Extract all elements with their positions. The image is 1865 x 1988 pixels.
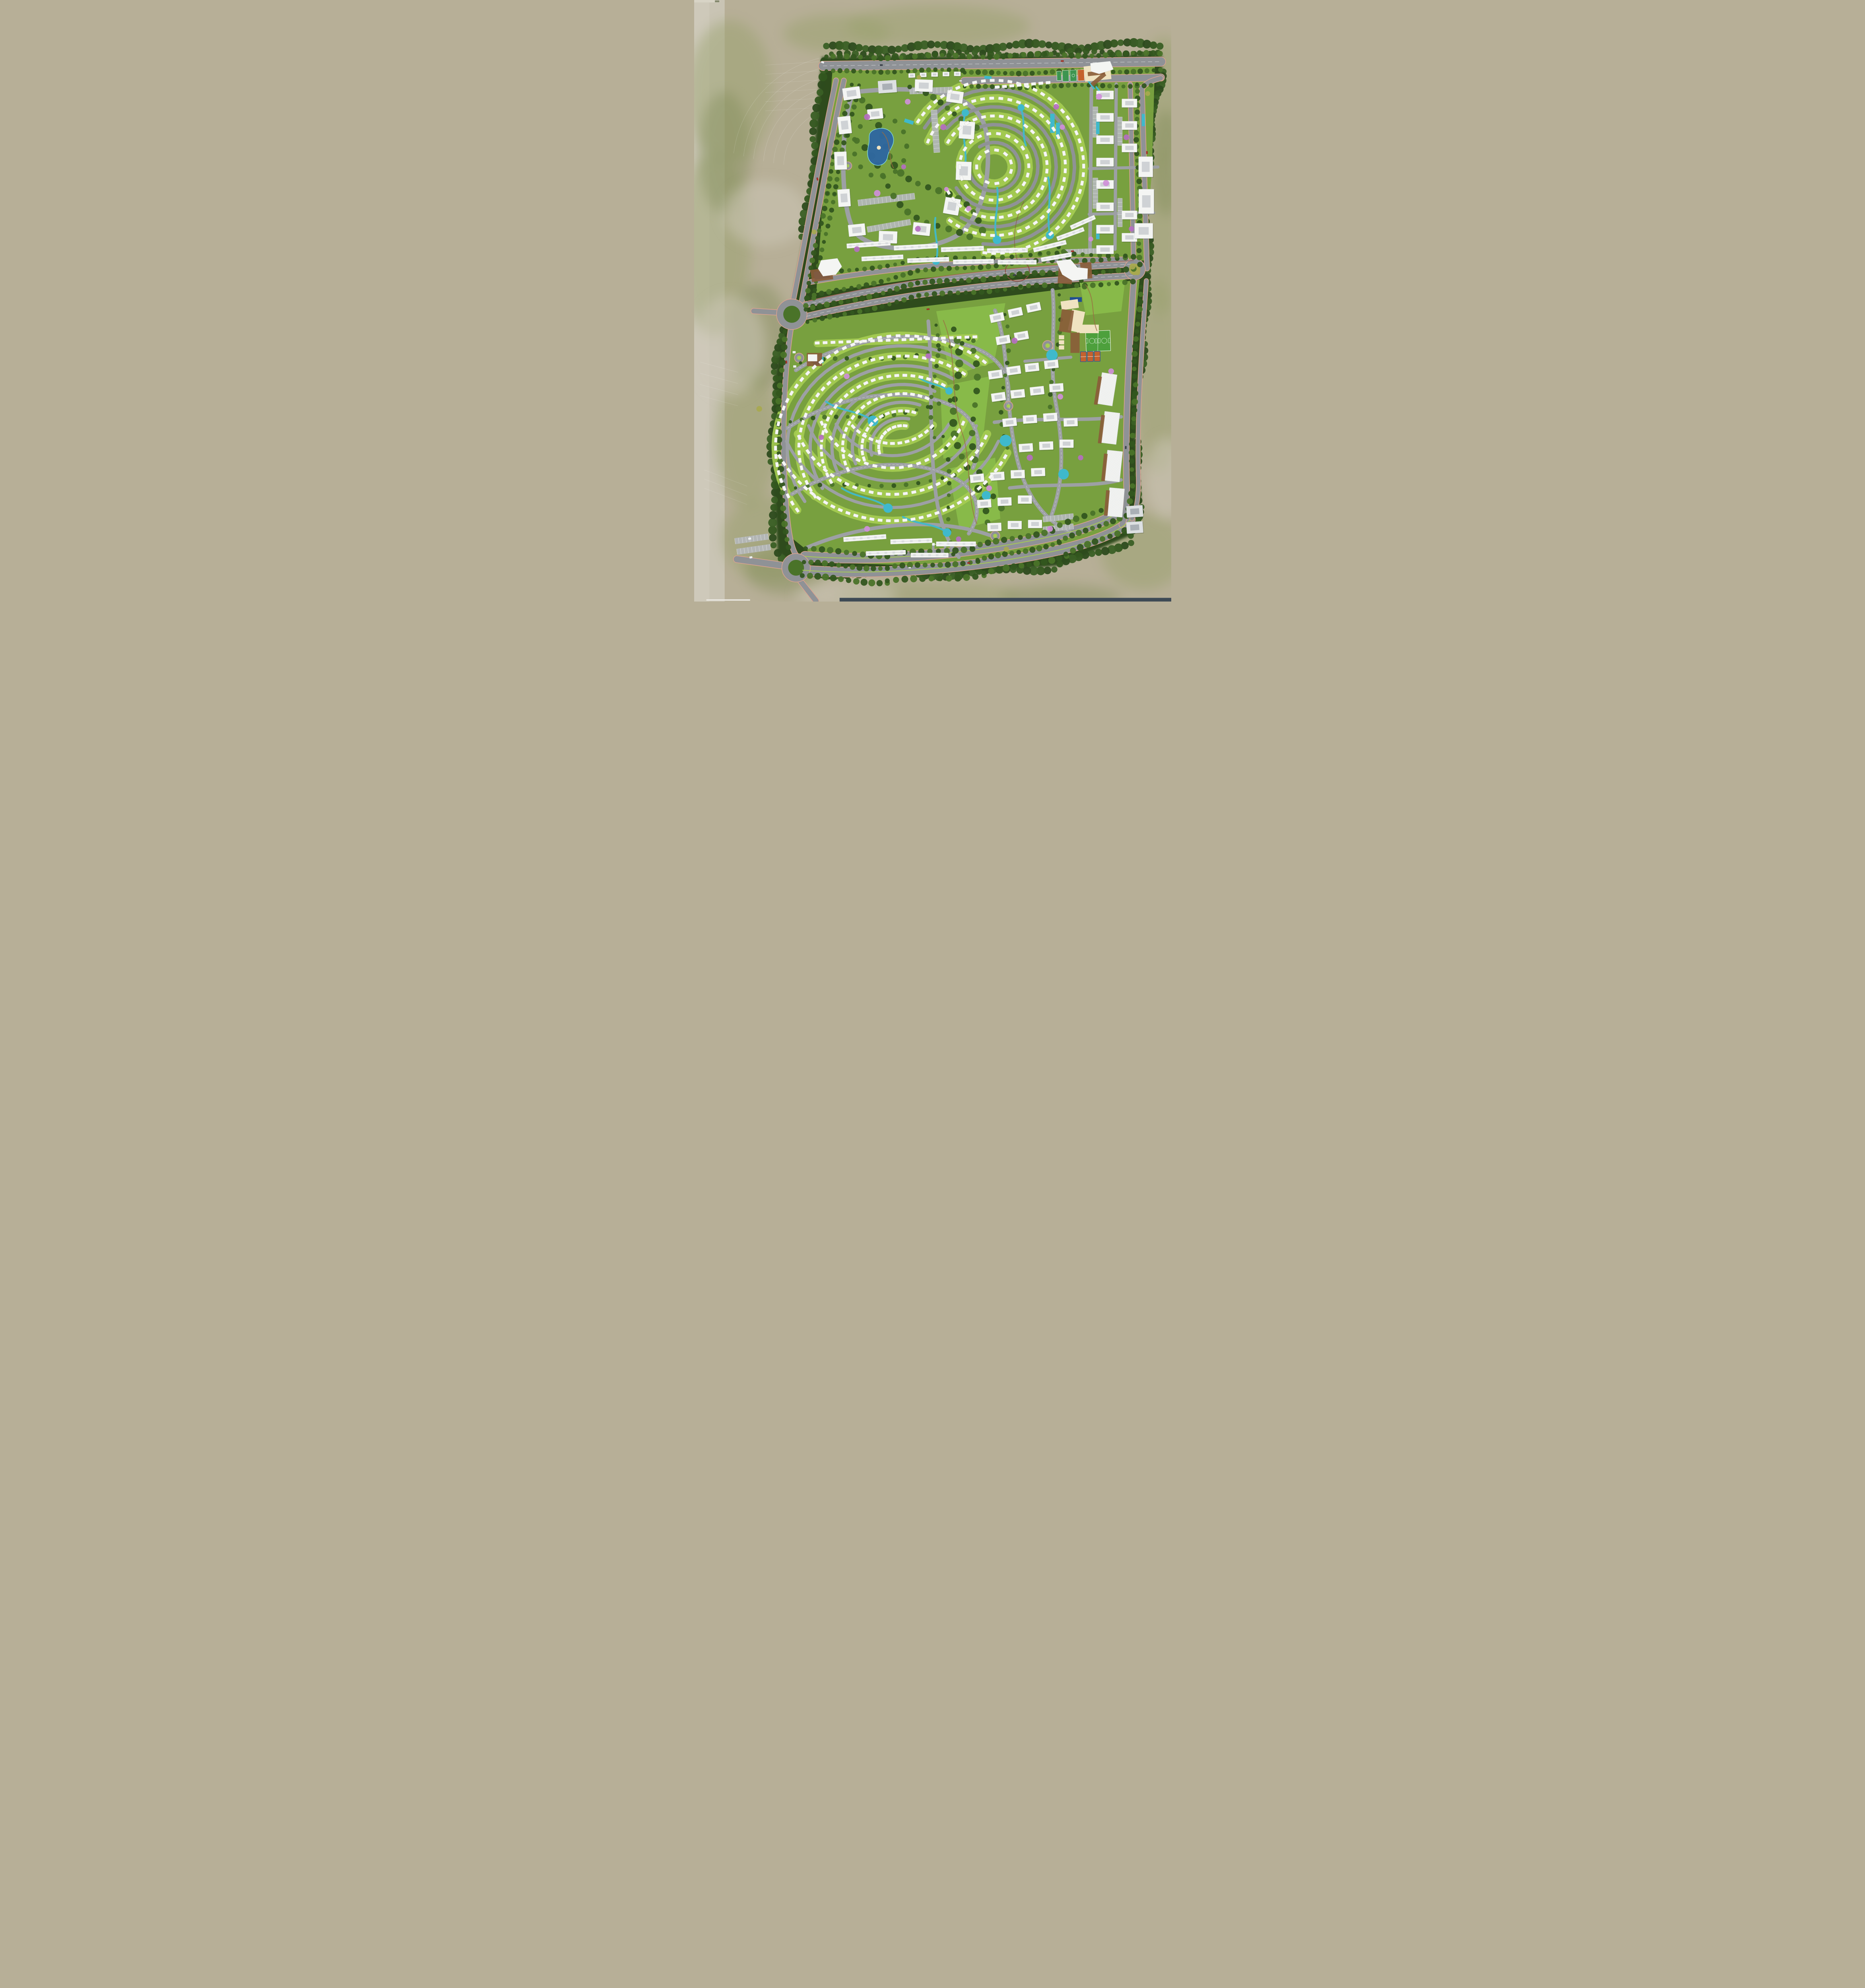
street-tree-row: [1075, 53, 1081, 59]
street-tree-row: [1045, 85, 1050, 89]
street-tree-row: [890, 193, 897, 199]
street-tree-row: [856, 357, 860, 360]
street-tree-row: [954, 442, 961, 449]
purple-flowering-tree: [925, 353, 930, 359]
mini-roundabout-green: [1006, 404, 1010, 408]
villa: [902, 374, 907, 377]
street-tree-row: [940, 68, 944, 71]
apartment-block: [912, 222, 931, 237]
street-tree-row: [857, 309, 862, 314]
buffer-canopy: [770, 542, 776, 549]
street-tree-row: [1050, 283, 1055, 288]
apartment-block-roof: [973, 476, 981, 481]
street-tree-row: [979, 289, 984, 295]
street-tree-row: [1098, 508, 1103, 513]
street-tree-row: [1056, 555, 1062, 562]
street-tree-row: [907, 270, 913, 276]
pond: [1046, 349, 1058, 361]
street-tree-row: [901, 576, 908, 582]
buffer-canopy: [1045, 41, 1052, 48]
street-tree-row: [930, 563, 935, 567]
street-tree-row: [1108, 269, 1113, 274]
street-tree-row: [922, 563, 927, 567]
street-tree-row: [900, 283, 906, 289]
townhouse-row-unit: [884, 552, 887, 554]
apartment-block-roof: [1014, 472, 1022, 476]
apartment-block-roof: [1100, 205, 1110, 209]
villa: [982, 251, 987, 254]
yellow-tree: [1145, 91, 1150, 96]
street-tree-row: [975, 558, 980, 562]
buffer-canopy: [811, 150, 818, 157]
street-tree-row: [1049, 380, 1054, 384]
apartment-block-roof: [919, 82, 929, 89]
townhouse-row-unit: [913, 554, 916, 556]
townhouse-row: [953, 259, 994, 264]
townhouse-row-unit: [892, 551, 895, 553]
street-tree-row: [913, 215, 920, 221]
street-tree-row: [871, 70, 876, 74]
street-tree-row: [1052, 84, 1056, 89]
purple-flowering-tree: [940, 124, 946, 130]
apartment-block: [970, 474, 985, 484]
townhouse-row-unit: [950, 248, 953, 250]
street-tree-row: [1068, 52, 1074, 58]
street-tree-row: [811, 416, 815, 420]
street-tree-row: [871, 566, 876, 571]
street-tree-row: [937, 99, 943, 105]
street-tree-row: [1075, 530, 1081, 536]
south-sports-clubhouse: [1059, 340, 1064, 344]
townhouse-row-unit: [970, 543, 973, 545]
street-tree-row: [1073, 83, 1077, 87]
roundabout-green: [783, 306, 800, 323]
townhouse-row-unit: [964, 261, 966, 263]
street-tree-row: [1070, 547, 1076, 553]
townhouse-row-unit: [1000, 261, 1003, 263]
street-tree-row: [995, 552, 1001, 558]
purple-flowering-tree: [1096, 93, 1102, 99]
street-tree-row: [959, 341, 964, 346]
townhouse-row-unit: [979, 247, 982, 249]
street-tree-row: [956, 291, 960, 295]
townhouse-row-unit: [896, 247, 899, 249]
street-tree-row: [1038, 252, 1042, 255]
townhouse-row-unit: [900, 551, 903, 553]
street-tree-row: [980, 276, 986, 282]
street-tree-row: [1056, 52, 1060, 57]
villa: [877, 445, 880, 449]
townhouse-row-unit: [988, 260, 991, 262]
street-tree-row: [988, 568, 994, 574]
street-tree-row: [852, 297, 858, 303]
buffer-canopy: [768, 526, 777, 535]
street-tree-row: [859, 295, 865, 301]
apartment-block: [1122, 121, 1137, 131]
apartment-block: [1122, 99, 1137, 109]
street-tree-row: [912, 68, 917, 73]
villa: [798, 458, 802, 463]
townhouse-row-unit: [874, 536, 877, 538]
townhouse-row-unit: [867, 537, 869, 539]
street-tree-row: [850, 54, 856, 59]
street-tree-row: [952, 278, 957, 283]
apartment-block: [1044, 359, 1059, 370]
street-tree-row: [1002, 551, 1007, 557]
street-tree-row: [894, 300, 899, 305]
street-tree-row: [1116, 51, 1122, 57]
street-tree-row: [1002, 274, 1007, 279]
purple-flowering-tree: [1057, 394, 1063, 399]
villa: [902, 392, 907, 395]
apartment-block: [1043, 413, 1058, 423]
apartment-block-roof: [1130, 524, 1139, 531]
street-tree-row: [976, 84, 981, 89]
villa-row: [1046, 81, 1050, 84]
street-tree-row: [846, 415, 849, 419]
apartment-block-roof: [1139, 227, 1149, 235]
street-tree-row: [780, 359, 786, 365]
street-tree-row: [851, 105, 856, 110]
street-tree-row: [1137, 299, 1143, 305]
street-tree-row: [1111, 70, 1115, 74]
apartment-block: [1096, 158, 1114, 167]
purple-flowering-tree: [915, 226, 920, 231]
car: [926, 308, 929, 310]
villa: [990, 115, 995, 118]
apartment-block-roof: [1125, 235, 1133, 240]
apartment-block-roof: [1028, 365, 1036, 370]
purple-flowering-tree: [1078, 455, 1083, 460]
apartment-block-roof: [1021, 497, 1029, 501]
street-tree-row: [808, 266, 813, 271]
street-tree-row: [1107, 83, 1112, 88]
apartment-block: [1002, 417, 1018, 428]
street-tree-row: [947, 493, 950, 497]
street-tree-row: [843, 564, 848, 569]
street-tree-row: [891, 483, 896, 488]
street-tree-row: [934, 324, 937, 327]
street-tree-row: [1038, 85, 1042, 89]
street-tree-row: [1130, 254, 1136, 260]
street-tree-row: [982, 555, 987, 561]
north-sport-court: [1077, 70, 1084, 81]
street-tree-row: [1077, 544, 1083, 551]
gate-post: [748, 538, 751, 540]
street-tree-row: [981, 571, 986, 575]
buffer-canopy: [1006, 42, 1013, 49]
apartment-block: [908, 73, 916, 78]
buffer-canopy: [769, 511, 777, 519]
car: [959, 80, 962, 82]
street-tree-row: [1101, 270, 1105, 274]
street-tree-row: [973, 388, 980, 394]
buffer-canopy: [811, 142, 818, 149]
villa-row: [1002, 85, 1007, 88]
street-tree-row: [1073, 516, 1079, 522]
street-tree-row: [946, 52, 951, 58]
street-tree-row: [974, 54, 978, 59]
street-tree-row: [900, 272, 905, 278]
street-tree-row: [951, 326, 957, 332]
buffer-canopy: [1149, 41, 1157, 49]
purple-flowering-tree: [1129, 226, 1134, 231]
street-tree-row: [980, 54, 985, 59]
street-tree-row: [780, 351, 786, 358]
street-tree-row: [1084, 541, 1091, 548]
street-tree-row: [1027, 51, 1033, 57]
purple-flowering-tree: [844, 373, 849, 379]
lagoon-tree-ring: [868, 173, 873, 177]
street-tree-row: [838, 577, 844, 582]
villa-row: [854, 340, 859, 343]
street-tree-row: [897, 169, 904, 177]
villa-row: [1031, 82, 1036, 85]
street-tree-row: [910, 575, 917, 582]
street-tree-row: [786, 545, 791, 550]
bottom-edge-strip: [839, 598, 1171, 602]
street-tree-row: [850, 564, 855, 570]
purple-flowering-tree: [905, 99, 910, 105]
purple-flowering-tree: [854, 247, 860, 252]
street-tree-row: [1090, 283, 1095, 288]
apartment-block: [1096, 225, 1114, 235]
villa: [958, 165, 961, 169]
apartment-block: [1122, 211, 1137, 220]
street-tree-row: [827, 176, 832, 181]
street-tree-row: [1037, 71, 1041, 75]
street-tree-row: [1065, 83, 1070, 87]
villa: [994, 148, 999, 152]
street-tree-row: [834, 313, 840, 318]
purple-flowering-tree: [1011, 338, 1017, 344]
street-tree-row: [931, 385, 934, 388]
street-tree-row: [1130, 483, 1135, 489]
townhouse-row-unit: [856, 244, 859, 246]
master-plan-page: [694, 0, 1171, 602]
street-tree-row: [1058, 83, 1063, 88]
street-tree-row: [869, 266, 875, 271]
apartment-block-roof: [1141, 162, 1149, 172]
street-tree-row: [822, 240, 826, 244]
street-tree-row: [850, 83, 854, 87]
street-tree-row: [929, 395, 933, 399]
villa: [999, 215, 1004, 219]
apartment-block: [1019, 443, 1034, 453]
villa: [902, 518, 907, 522]
apartment-block: [931, 72, 938, 78]
street-tree-row: [858, 55, 863, 60]
street-tree-row: [951, 552, 955, 556]
street-tree-row: [1023, 71, 1028, 76]
purple-flowering-tree: [1053, 104, 1059, 109]
apartment-block-roof: [1100, 247, 1110, 252]
townhouse-row-unit: [963, 543, 965, 545]
car: [880, 64, 883, 66]
street-tree-row: [1135, 117, 1139, 121]
apartment-block-roof: [993, 474, 1001, 479]
villa-row: [893, 338, 898, 342]
street-tree-row: [1071, 252, 1076, 256]
street-tree-row: [1114, 253, 1119, 258]
street-tree-row: [952, 111, 957, 116]
street-tree-row: [1023, 548, 1028, 554]
lagoon-tree-ring: [901, 158, 906, 163]
street-tree-row: [960, 561, 966, 566]
street-tree-row: [885, 565, 889, 569]
street-tree-row: [842, 287, 846, 291]
street-tree-row: [972, 573, 978, 580]
street-tree-row: [1083, 528, 1088, 533]
street-tree-row: [825, 223, 830, 228]
street-tree-row: [1005, 361, 1009, 365]
mini-roundabout-green: [1045, 344, 1050, 348]
street-tree-row: [955, 359, 963, 367]
apartment-block: [1126, 505, 1144, 518]
apartment-block-roof: [950, 93, 959, 101]
apartment-block: [1011, 470, 1025, 480]
villa-row: [941, 336, 945, 340]
townhouse-row-unit: [878, 243, 881, 245]
townhouse-row-unit: [972, 261, 975, 263]
apartment-block-roof: [1022, 445, 1030, 450]
street-tree-row: [1130, 69, 1136, 74]
apartment-block-roof: [1005, 420, 1013, 425]
purple-flowering-tree: [1088, 237, 1093, 241]
street-tree-row: [893, 262, 897, 266]
apartment-block: [1134, 223, 1153, 239]
street-tree-row: [1036, 546, 1042, 551]
street-tree-row: [1001, 537, 1007, 543]
street-tree-row: [946, 457, 950, 462]
street-tree-row: [945, 105, 950, 111]
street-tree-row: [1124, 69, 1129, 74]
apartment-block: [842, 86, 862, 101]
villa: [887, 355, 892, 359]
street-tree-row: [973, 360, 980, 367]
street-tree-row: [1130, 51, 1135, 55]
street-tree-row: [1016, 550, 1021, 555]
street-tree-row: [946, 266, 951, 271]
street-tree-row: [954, 575, 961, 581]
street-tree-row: [905, 176, 912, 182]
street-tree-row: [813, 288, 817, 292]
townhouse-row-unit: [920, 554, 923, 556]
villa: [881, 466, 886, 469]
townhouse-row-unit: [897, 256, 900, 258]
street-tree-row: [1057, 522, 1062, 528]
street-tree-row: [934, 364, 939, 368]
street-tree-row: [1098, 258, 1104, 263]
street-tree-row: [940, 53, 944, 57]
buffer-canopy: [1051, 567, 1058, 573]
street-tree-row: [815, 560, 821, 566]
townhouse-row-unit: [1031, 261, 1034, 263]
street-tree-row: [1157, 51, 1162, 56]
townhouse-row-unit: [1023, 261, 1026, 263]
street-tree-row: [826, 183, 831, 189]
street-tree-row: [823, 301, 829, 307]
townhouse-row-unit: [918, 540, 921, 542]
street-tree-row: [885, 70, 890, 75]
villa: [894, 493, 899, 496]
street-tree-row: [935, 353, 940, 358]
pool: [1142, 114, 1145, 126]
apartment-block: [1010, 389, 1026, 399]
street-tree-row: [989, 70, 994, 75]
street-tree-row: [1090, 526, 1095, 531]
villa: [897, 441, 902, 445]
townhouse-row-unit: [918, 246, 921, 248]
townhouse-row-unit: [932, 245, 935, 247]
apartment-block: [834, 151, 848, 171]
street-tree-row: [1106, 282, 1110, 286]
buffer-canopy: [895, 46, 901, 52]
street-tree-row: [1136, 179, 1142, 184]
street-tree-row: [1048, 52, 1054, 57]
apartment-block: [914, 80, 933, 93]
street-tree-row: [794, 486, 797, 489]
apartment-block-roof: [1063, 442, 1070, 446]
street-tree-row: [877, 264, 882, 270]
purple-flowering-tree: [864, 114, 870, 120]
townhouse-row-unit: [881, 536, 884, 538]
street-tree-row: [1028, 253, 1032, 257]
street-tree-row: [1062, 52, 1067, 58]
street-tree-row: [924, 292, 929, 297]
street-tree-row: [885, 55, 891, 61]
purple-flowering-tree: [819, 435, 824, 440]
street-tree-row: [878, 566, 882, 571]
lagoon-tree-ring: [858, 164, 863, 169]
street-tree-row: [947, 481, 951, 485]
villa-row: [815, 342, 819, 345]
buffer-canopy: [817, 81, 825, 89]
apartment-block-roof: [1013, 391, 1021, 396]
street-tree-row: [1058, 293, 1061, 297]
apartment-block-roof: [1125, 146, 1133, 150]
street-tree-row: [819, 248, 824, 252]
townhouse-row-unit: [1008, 261, 1011, 263]
street-tree-row: [1131, 476, 1135, 480]
street-tree-row: [1144, 68, 1149, 73]
street-tree-row: [950, 408, 957, 415]
villa-row: [862, 340, 867, 343]
villa: [890, 442, 895, 445]
villa-row: [901, 338, 906, 341]
villa: [898, 410, 902, 413]
apartment-block: [1060, 440, 1074, 449]
street-tree-row: [1132, 390, 1138, 396]
villa: [1045, 169, 1048, 173]
street-tree-row: [778, 375, 783, 380]
buffer-canopy: [1128, 540, 1134, 546]
buffer-canopy: [934, 41, 941, 48]
street-tree-row: [975, 217, 981, 223]
villa: [904, 355, 909, 358]
buffer-canopy: [771, 369, 777, 375]
street-tree-row: [844, 68, 849, 74]
street-tree-row: [937, 402, 941, 406]
street-tree-row: [983, 84, 988, 89]
street-tree-row: [822, 206, 827, 211]
street-tree-row: [833, 356, 837, 361]
street-tree-row: [917, 293, 921, 297]
street-tree-row: [986, 264, 991, 270]
street-tree-row: [817, 229, 821, 233]
buffer-canopy: [887, 46, 896, 54]
street-tree-row: [960, 68, 965, 73]
